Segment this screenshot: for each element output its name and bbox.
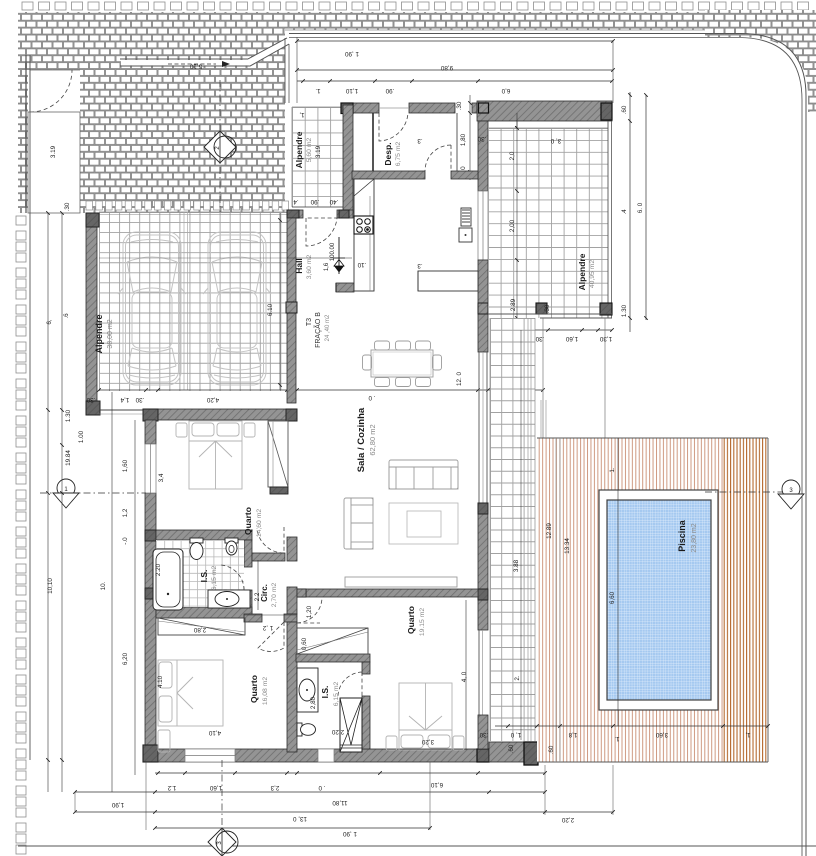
svg-text:11,80: 11,80 xyxy=(332,799,348,806)
svg-text:1,: 1, xyxy=(745,731,751,738)
svg-text:1.00: 1.00 xyxy=(78,430,85,443)
svg-text:T3: T3 xyxy=(306,318,313,326)
svg-text:Circ.: Circ. xyxy=(260,584,269,602)
svg-text:1,10: 1,10 xyxy=(345,87,358,94)
svg-text:5,10: 5,10 xyxy=(189,63,202,70)
svg-text:62,80 m2: 62,80 m2 xyxy=(368,424,377,455)
svg-text:6,15 m2: 6,15 m2 xyxy=(333,682,340,707)
svg-text:Quarto: Quarto xyxy=(243,507,253,535)
svg-text:6,0: 6,0 xyxy=(501,87,510,94)
svg-text:100.00: 100.00 xyxy=(330,242,336,261)
svg-text:1,4: 1,4 xyxy=(120,396,129,403)
svg-text:24 ,40 m2: 24 ,40 m2 xyxy=(325,314,331,341)
svg-text:1 ,90: 1 ,90 xyxy=(345,50,360,57)
svg-text:6,75 m2: 6,75 m2 xyxy=(395,142,402,167)
svg-text:3.19: 3.19 xyxy=(50,145,57,158)
svg-text:Alpendre: Alpendre xyxy=(294,131,304,168)
svg-text:1,80: 1,80 xyxy=(460,133,467,146)
svg-text:9,80: 9,80 xyxy=(440,64,453,71)
svg-text:.60: .60 xyxy=(548,745,555,754)
svg-text:.30: .30 xyxy=(456,101,463,110)
svg-text:.4: .4 xyxy=(621,209,628,215)
svg-text:2,80: 2,80 xyxy=(310,696,317,709)
svg-text:.6: .6 xyxy=(63,313,70,319)
svg-text:Alpendre: Alpendre xyxy=(94,314,104,353)
svg-text:1,20: 1,20 xyxy=(306,605,313,618)
svg-text:1,60: 1,60 xyxy=(209,784,222,791)
svg-text:-.0: -.0 xyxy=(122,537,129,545)
svg-text:2,80: 2,80 xyxy=(193,626,206,633)
svg-text:6,60: 6,60 xyxy=(609,591,616,604)
svg-text:.10: .10 xyxy=(357,261,366,268)
svg-text:6,20: 6,20 xyxy=(122,652,129,665)
svg-text:4.10: 4.10 xyxy=(157,675,164,688)
svg-text:1,60: 1,60 xyxy=(122,459,129,472)
svg-text:.30: .30 xyxy=(86,396,95,403)
svg-text:FRAÇÃO B: FRAÇÃO B xyxy=(313,312,322,348)
svg-text:4,20: 4,20 xyxy=(206,396,219,403)
svg-text:6.10: 6.10 xyxy=(267,303,274,316)
svg-text:.3: .3 xyxy=(417,137,423,144)
svg-text:. 0: . 0 xyxy=(368,394,375,401)
svg-text:13.34: 13.34 xyxy=(564,538,571,554)
svg-text:13, 0: 13, 0 xyxy=(293,815,308,822)
svg-text:Desp.: Desp. xyxy=(383,142,393,165)
svg-text:1.30: 1.30 xyxy=(621,304,628,317)
svg-text:10,10: 10,10 xyxy=(47,578,54,594)
svg-text:2,00: 2,00 xyxy=(509,219,516,232)
svg-text:1.: 1. xyxy=(609,467,616,473)
svg-text:2,70 m2: 2,70 m2 xyxy=(271,583,278,608)
svg-text:1.2: 1.2 xyxy=(167,784,176,791)
svg-text:Quarto: Quarto xyxy=(249,675,259,703)
svg-text:6,15 m2: 6,15 m2 xyxy=(211,566,218,591)
svg-text:1.: 1. xyxy=(614,735,620,742)
svg-text:.30: .30 xyxy=(64,202,71,211)
svg-text:I.S.: I.S. xyxy=(199,570,209,583)
svg-text:Alpendre: Alpendre xyxy=(577,253,587,290)
svg-text:1,60: 1,60 xyxy=(565,335,578,342)
svg-text:16,08 m2: 16,08 m2 xyxy=(262,677,269,706)
svg-text:3.19: 3.19 xyxy=(315,145,322,158)
svg-text:1.: 1. xyxy=(315,87,321,94)
svg-text:1 ,2: 1 ,2 xyxy=(262,624,273,631)
svg-text:1,8: 1,8 xyxy=(568,731,577,738)
svg-text:.30: .30 xyxy=(477,135,486,142)
svg-text:1,2: 1,2 xyxy=(122,508,129,517)
svg-text:.30: .30 xyxy=(135,396,144,403)
svg-text:2,0: 2,0 xyxy=(509,151,516,160)
svg-text:.60: .60 xyxy=(621,105,628,114)
svg-text:.90: .90 xyxy=(310,198,319,205)
svg-text:.30: .30 xyxy=(479,731,488,738)
svg-text:4, 0: 4, 0 xyxy=(461,671,468,682)
svg-text:1,6: 1,6 xyxy=(324,262,330,271)
svg-text:1.30: 1.30 xyxy=(65,409,72,422)
svg-text:0,60: 0,60 xyxy=(301,637,308,650)
svg-text:.4: .4 xyxy=(293,198,299,205)
svg-text:2.89: 2.89 xyxy=(510,298,517,311)
svg-text:Quarto: Quarto xyxy=(406,606,416,634)
svg-text:19.15 m2: 19.15 m2 xyxy=(419,608,426,637)
svg-text:Piscina: Piscina xyxy=(677,519,687,552)
svg-text:4,10: 4,10 xyxy=(208,729,221,736)
svg-text:6,10: 6,10 xyxy=(430,781,443,788)
svg-text:1,30: 1,30 xyxy=(599,335,612,342)
svg-text:23,80 m2: 23,80 m2 xyxy=(691,523,698,552)
svg-text:12. 0: 12. 0 xyxy=(456,372,463,387)
svg-text:38,00 m2: 38,00 m2 xyxy=(107,319,114,348)
svg-text:6,: 6, xyxy=(46,319,53,325)
svg-text:3,60: 3,60 xyxy=(655,731,668,738)
svg-text:2,20: 2,20 xyxy=(561,816,574,823)
svg-text:3.88: 3.88 xyxy=(513,559,520,572)
svg-text:1, 0: 1, 0 xyxy=(510,731,521,738)
svg-text:1,90: 1,90 xyxy=(111,801,124,808)
svg-text:19.84: 19.84 xyxy=(65,450,72,466)
svg-text:14,60 m2: 14,60 m2 xyxy=(256,509,263,538)
svg-text:2.20: 2.20 xyxy=(155,563,162,576)
svg-text:2.: 2. xyxy=(514,675,521,681)
svg-text:10.: 10. xyxy=(100,581,107,590)
svg-text:3,4: 3,4 xyxy=(158,473,165,482)
svg-text:2,20: 2,20 xyxy=(331,728,344,735)
svg-text:12.89: 12.89 xyxy=(546,523,553,539)
svg-text:40,95 m2: 40,95 m2 xyxy=(589,260,596,289)
svg-text:3, 0: 3, 0 xyxy=(550,137,561,144)
svg-text:Hall: Hall xyxy=(294,258,304,274)
svg-text:5,60 m2: 5,60 m2 xyxy=(306,138,313,163)
svg-text:1 ,90: 1 ,90 xyxy=(343,830,358,837)
svg-text:.30: .30 xyxy=(544,304,551,313)
svg-text:.60: .60 xyxy=(508,744,515,753)
svg-text:. 0: . 0 xyxy=(318,784,325,791)
svg-text:2.2: 2.2 xyxy=(254,592,261,601)
svg-text:2,3: 2,3 xyxy=(270,784,279,791)
svg-text:3,20: 3,20 xyxy=(421,738,434,745)
svg-text:1,: 1, xyxy=(299,111,305,118)
svg-text:.90: .90 xyxy=(385,87,394,94)
svg-text:.40: .40 xyxy=(329,198,338,205)
svg-text:Sala / Cozinha: Sala / Cozinha xyxy=(356,407,367,472)
svg-text:I.S.: I.S. xyxy=(320,686,330,699)
svg-text:6. 0: 6. 0 xyxy=(637,202,644,213)
svg-text:.3: .3 xyxy=(417,262,423,269)
